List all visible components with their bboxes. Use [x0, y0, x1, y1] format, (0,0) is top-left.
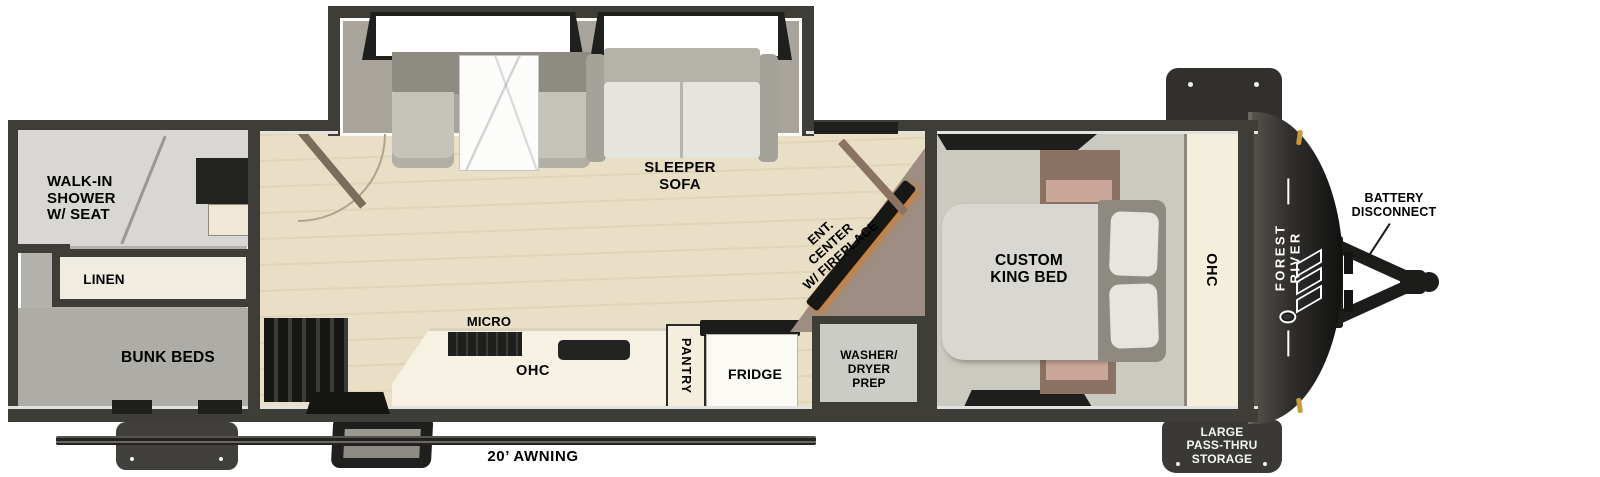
bedroom-wardrobe-top — [1040, 150, 1120, 206]
entry-door-opening — [306, 392, 390, 414]
bedroom-ohc-label: OHC — [1203, 253, 1219, 287]
underbelly-storage-door — [116, 422, 238, 470]
sleeper-sofa-arm — [586, 54, 606, 162]
king-bed-label: CUSTOM KING BED — [955, 252, 1103, 287]
bath-cabinet — [208, 204, 250, 236]
clearance-light — [1296, 398, 1303, 414]
kitchen-ohc-label: OHC — [498, 363, 568, 379]
battery-disconnect-label: BATTERY DISCONNECT — [1328, 191, 1460, 220]
pass-thru-storage-tab: LARGE PASS-THRU STORAGE — [1162, 420, 1282, 473]
top-wall-left-of-slide — [252, 120, 338, 134]
bedroom-top-window — [937, 134, 1097, 150]
pass-thru-storage-label: LARGE PASS-THRU STORAGE — [1162, 426, 1282, 466]
awning-rail — [56, 436, 816, 445]
brand-rule — [1287, 331, 1289, 357]
floorplan-canvas: LARGE PASS-THRU STORAGE 20’ AWNING WALK-… — [0, 0, 1600, 477]
sleeper-sofa-label: SLEEPER SOFA — [620, 160, 740, 194]
microwave — [448, 332, 522, 356]
washer-dryer-label: WASHER/ DRYER PREP — [826, 349, 912, 390]
dinette-table — [459, 55, 539, 171]
dinette-bench-left — [392, 92, 454, 168]
fridge-label: FRIDGE — [710, 367, 800, 383]
living-window — [814, 122, 898, 134]
living-bedroom-dividing-wall — [925, 120, 937, 422]
bath-dividing-wall — [18, 244, 70, 253]
bath-vanity-sink — [196, 158, 250, 204]
cooktop — [558, 340, 630, 360]
bunk-window — [112, 400, 152, 414]
pantry-label: PANTRY — [679, 338, 693, 394]
forest-river-emblem-icon — [1280, 310, 1297, 323]
walk-in-shower-label: WALK-IN SHOWER W/ SEAT — [47, 174, 163, 224]
bottom-wall — [8, 406, 1258, 422]
step-tread — [343, 446, 420, 458]
awning-label: 20’ AWNING — [467, 449, 599, 466]
brand-rule — [1287, 179, 1289, 205]
sleeper-sofa-seats — [604, 82, 760, 158]
sleeper-sofa-back — [604, 48, 760, 84]
rear-living-dividing-wall — [248, 120, 260, 422]
slide-window-glass — [376, 16, 570, 56]
bunk-window — [198, 400, 242, 414]
brand-stripes-icon — [1296, 252, 1322, 310]
bedroom-ohc-label-wrap: OHC — [1186, 240, 1236, 300]
wardrobe-slat-unit — [264, 318, 348, 402]
linen-label: LINEN — [68, 272, 140, 287]
micro-label: MICRO — [454, 315, 524, 330]
bunk-beds-label: BUNK BEDS — [98, 349, 238, 366]
pillow — [1109, 283, 1159, 349]
sleeper-sofa-arm — [758, 54, 778, 162]
pillow — [1109, 211, 1159, 277]
pantry-cabinet: PANTRY — [666, 324, 706, 408]
